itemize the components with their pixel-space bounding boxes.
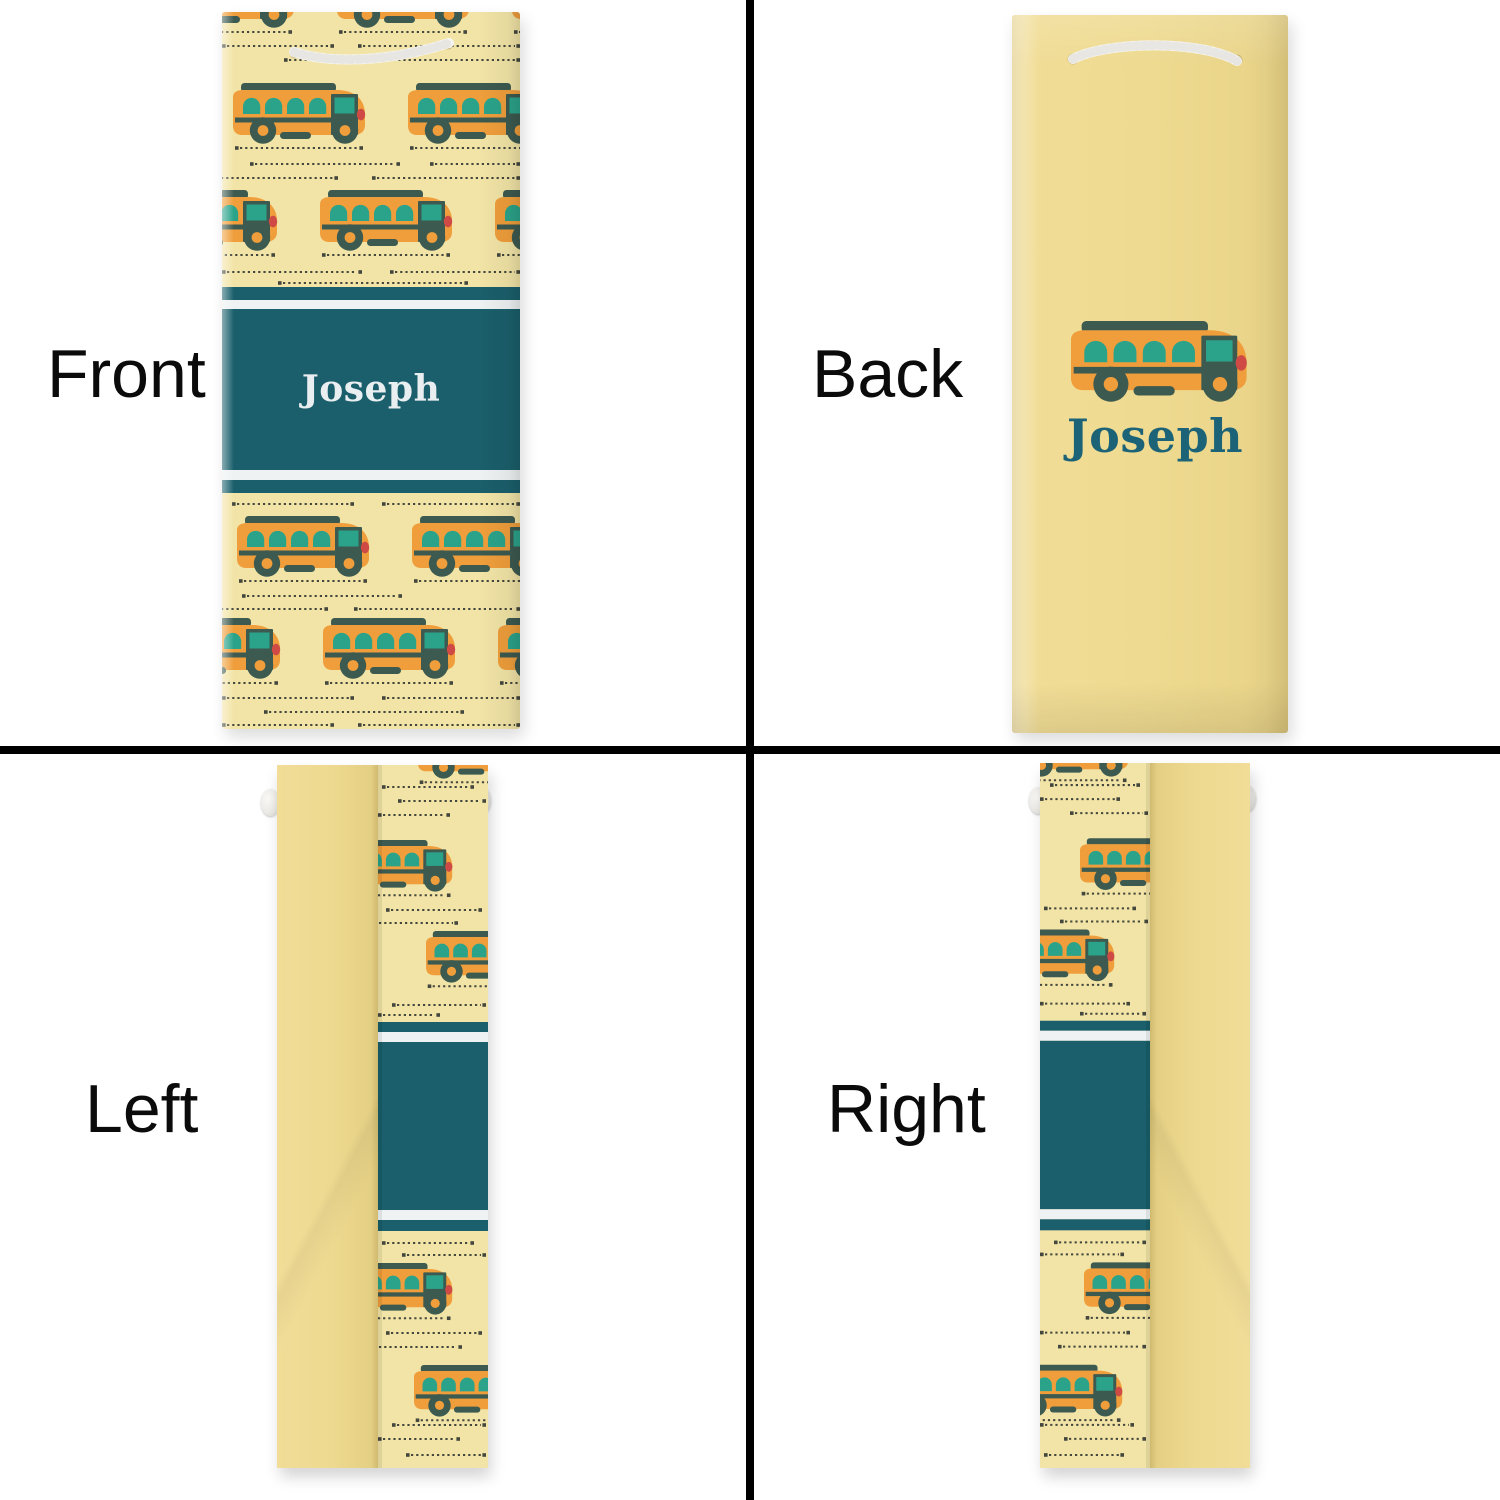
school-bus-icon [320, 190, 452, 251]
school-bus-icon [412, 516, 520, 577]
rope-handle-icon [1068, 45, 1243, 65]
gift-bag-front-view: Joseph [222, 12, 520, 729]
front-panel-edge [1040, 763, 1150, 1468]
front-panel-edge [378, 765, 488, 1468]
view-label-back: Back [812, 337, 963, 412]
gift-bag-right-view [1040, 763, 1250, 1468]
school-bus-icon [323, 618, 455, 679]
back-bag-artwork: Joseph [1012, 15, 1288, 733]
bag-side-gusset [277, 765, 378, 1468]
view-label-right: Right [827, 1072, 986, 1147]
front-bag-artwork: Joseph [222, 12, 520, 729]
name-band [1040, 1021, 1150, 1231]
personalized-name-back: Joseph [1063, 409, 1243, 463]
left-strip-artwork [378, 765, 488, 1468]
gift-bag-back-view: Joseph [1012, 15, 1288, 733]
grid-divider-horizontal [0, 746, 1500, 754]
product-mockup-canvas: Front Back Left Right Joseph Joseph [0, 0, 1500, 1500]
school-bus-icon [237, 516, 369, 577]
view-label-left: Left [85, 1072, 198, 1147]
school-bus-icon [414, 1365, 488, 1417]
school-bus-icon [1080, 838, 1150, 890]
view-label-front: Front [47, 337, 206, 412]
school-bus-icon [426, 931, 488, 983]
school-bus-icon [1084, 1262, 1150, 1314]
name-band [378, 1022, 488, 1231]
right-strip-artwork [1040, 763, 1150, 1468]
gift-bag-left-view [277, 765, 488, 1468]
school-bus-icon [408, 83, 520, 144]
school-bus-icon [233, 83, 365, 144]
personalized-name-front: Joseph [299, 368, 441, 410]
school-bus-icon [1071, 321, 1247, 402]
bag-side-gusset [1150, 763, 1250, 1468]
